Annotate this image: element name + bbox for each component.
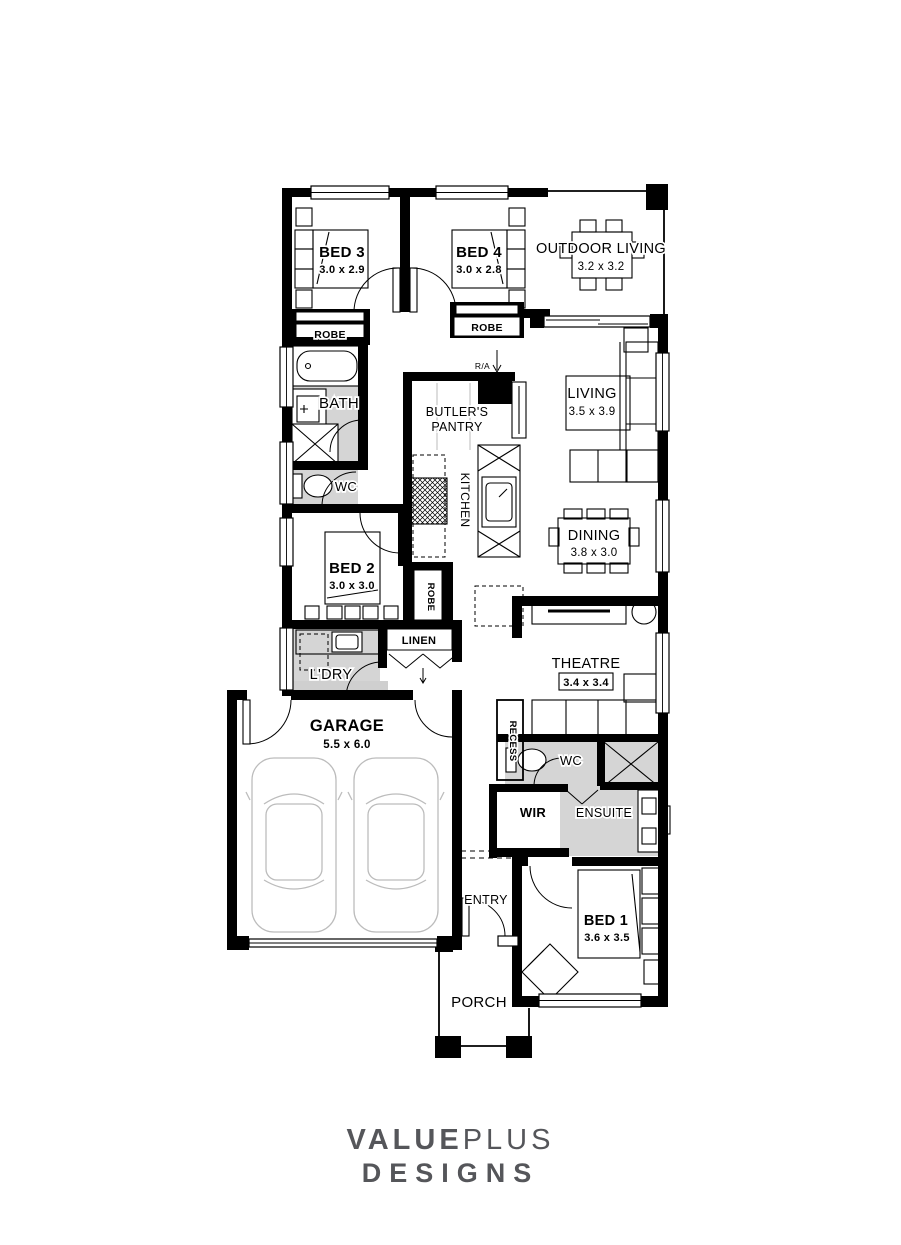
room-dim-bed4: 3.0 x 2.8 [456, 264, 502, 276]
room-label-entry: ENTRY [464, 893, 508, 907]
sliding-door [544, 316, 650, 327]
room-label-living: LIVING [567, 386, 616, 402]
room-label-kitchen: KITCHEN [458, 473, 472, 528]
room-label-garage: GARAGE [310, 717, 384, 735]
room-label-bed3: BED 3 [319, 244, 365, 261]
room-label-robe4: ROBE [471, 322, 503, 334]
garage-door [249, 939, 437, 947]
room-dim-bed1: 3.6 x 3.5 [584, 932, 630, 944]
room-label-porch: PORCH [451, 994, 507, 1011]
room-label-bed4: BED 4 [456, 244, 502, 261]
brand-name-part1: VALUE [347, 1124, 463, 1156]
room-label-wc: WC [335, 479, 357, 494]
brand-logo: VALUEPLUS DESIGNS [0, 1124, 901, 1189]
room-label-outdoor-living: OUTDOOR LIVING [536, 241, 666, 257]
window [656, 500, 669, 572]
car-icon [348, 758, 444, 932]
room-label-butlers-pantry-2: PANTRY [431, 420, 483, 434]
living-sofa-icon [566, 328, 658, 482]
room-dim-dining: 3.8 x 3.0 [571, 547, 618, 559]
room-label-wir: WIR [520, 805, 546, 820]
room-dim-bed2: 3.0 x 3.0 [329, 580, 375, 592]
room-dim-living: 3.5 x 3.9 [569, 406, 616, 418]
room-dim-garage: 5.5 x 6.0 [323, 739, 370, 751]
brand-logo-line1: VALUEPLUS [0, 1124, 901, 1157]
bed1-door [530, 866, 572, 908]
return-air-marker [493, 350, 501, 372]
wc-toilet-icon [292, 474, 332, 498]
bed4-door [410, 268, 456, 312]
window [280, 347, 293, 407]
room-label-butlers-pantry-1: BUTLER'S [426, 405, 488, 419]
garage-side-door [243, 700, 291, 744]
room-label-wc2: WC [560, 753, 582, 768]
room-label-bed1: BED 1 [584, 913, 628, 929]
linen-bifold-doors [389, 654, 457, 683]
window [311, 186, 389, 199]
window [436, 186, 508, 199]
room-dim-theatre: 3.4 x 3.4 [563, 677, 609, 689]
window [539, 994, 641, 1007]
room-label-linen: LINEN [402, 635, 437, 647]
car-icon [246, 758, 342, 932]
return-air-label: R/A [475, 361, 490, 371]
room-label-robe2: ROBE [425, 583, 436, 612]
entry-sidelight [498, 936, 518, 946]
floor-plan-page: BED 3 3.0 x 2.9 BED 4 3.0 x 2.8 OUTDOOR … [0, 0, 901, 1245]
brand-name-part2: PLUS [463, 1124, 555, 1156]
room-dim-bed3: 3.0 x 2.9 [319, 264, 365, 276]
floor-plan-drawing: BED 3 3.0 x 2.9 BED 4 3.0 x 2.8 OUTDOOR … [0, 0, 901, 1245]
garage-internal-door [415, 700, 452, 737]
room-label-laundry: L'DRY [310, 667, 353, 683]
window [280, 628, 293, 690]
window [280, 518, 293, 566]
bathtub-icon [292, 346, 362, 386]
room-label-recess: RECESS [507, 721, 518, 762]
room-label-ensuite: ENSUITE [576, 806, 632, 820]
window [280, 442, 293, 504]
window [656, 633, 669, 713]
brand-logo-line2: DESIGNS [0, 1157, 901, 1189]
window [656, 353, 669, 431]
room-label-robe3: ROBE [314, 329, 346, 341]
room-dim-outdoor-living: 3.2 x 3.2 [578, 261, 625, 273]
room-label-theatre: THEATRE [552, 656, 621, 672]
room-label-bed2: BED 2 [329, 560, 375, 577]
bed1-chair-icon [522, 944, 578, 1000]
room-label-dining: DINING [568, 528, 621, 544]
room-label-bath: BATH [319, 395, 359, 412]
